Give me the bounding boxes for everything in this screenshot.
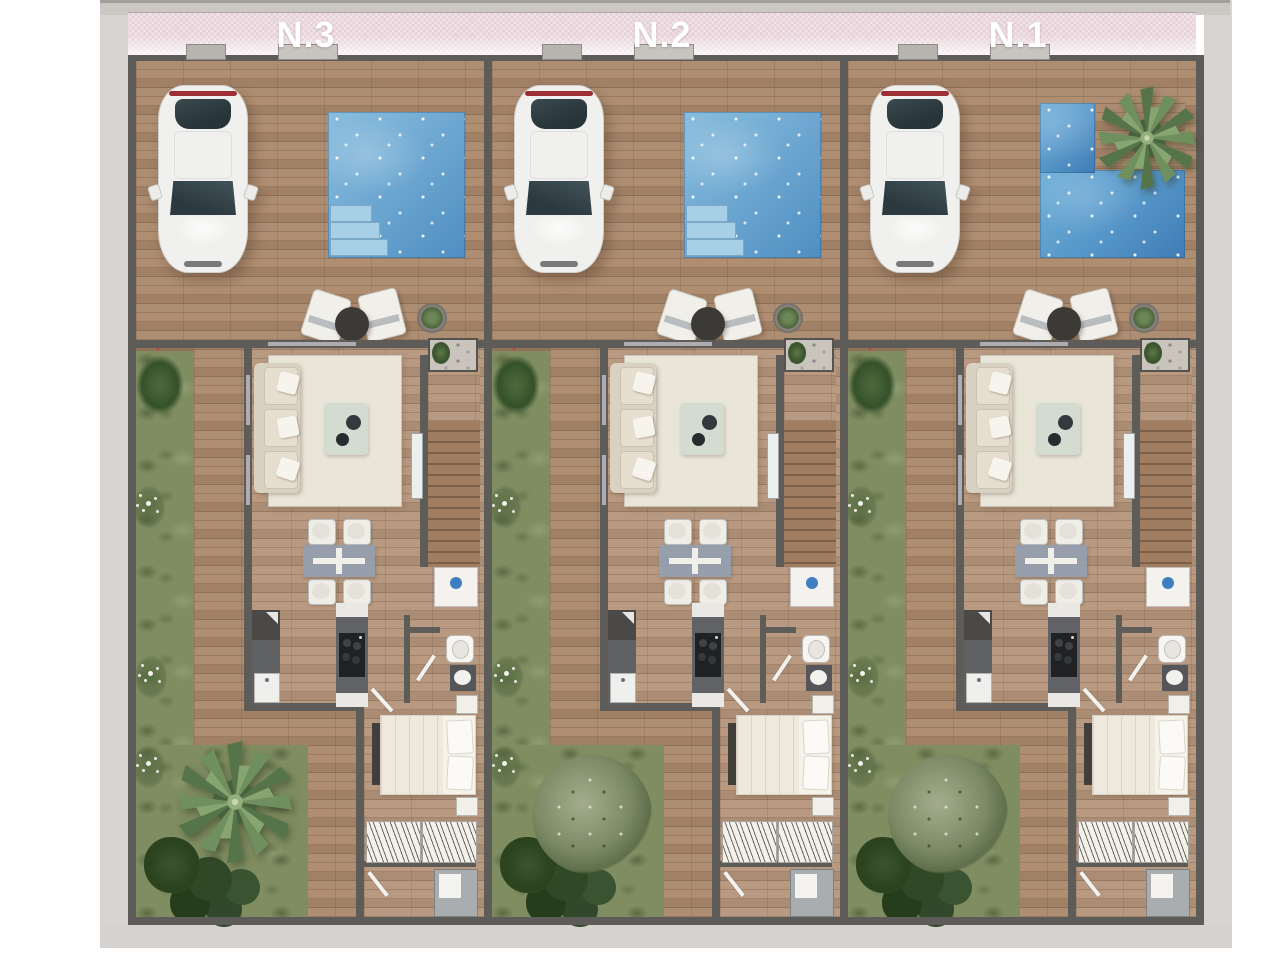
car-rear-window [531,99,587,129]
flower-bush [132,745,166,789]
kitchen-island [692,603,724,707]
dining-chair [308,579,336,605]
car-windshield [170,181,236,215]
sofa-pillow [988,415,1011,438]
duvet [737,716,799,794]
unit-label: N.1 [988,14,1047,56]
garden-walkway [906,348,956,710]
parked-car [514,85,604,273]
side-boundary-wall [484,55,492,925]
side-window [246,375,250,425]
glass-rail [767,433,779,499]
kitchen-sink [966,673,992,703]
car-grille [184,261,222,267]
car-rear-window [175,99,231,129]
glass-rail [1123,433,1135,499]
dining-chair [1055,519,1083,545]
side-table [691,307,725,341]
parked-car [870,85,960,273]
sofa-pillow [276,415,299,438]
car-rear-window [887,99,943,129]
refrigerator [434,567,478,607]
porch-step [542,44,582,60]
shrub [848,355,896,415]
shrub [492,355,540,415]
flower-bush [488,485,522,529]
bedroom-wing-wall [1068,710,1076,917]
shower [1146,869,1190,917]
olive-tree [532,755,652,875]
olive-tree [888,755,1008,875]
double-bed [1092,715,1188,795]
car-windshield [526,181,592,215]
sidewalk-bottom [100,925,1232,948]
cooktop [695,633,721,677]
pool-step [330,222,380,239]
wardrobe-section [722,821,777,863]
side-window [602,455,606,505]
dining-chair [343,579,371,605]
kitchen-island [1048,603,1080,707]
bed-pillow [1158,719,1186,754]
island-worktop [692,693,724,707]
wardrobe [1078,821,1188,861]
sofa-pillow [632,415,655,438]
car-roof [530,131,588,179]
decor-tray [1058,415,1073,430]
garden-walkway [550,348,600,710]
dining-chair [308,519,336,545]
porch-step [898,44,938,60]
pool-step [686,205,728,222]
table-runner [336,548,342,574]
double-bed [736,715,832,795]
flower-bush [490,655,524,699]
dining-chair [343,519,371,545]
washbasin [806,665,832,691]
shower [434,869,478,917]
sofa [610,363,656,493]
dining-chair [699,519,727,545]
island-worktop [692,603,724,617]
car-grille [540,261,578,267]
rear-boundary-wall [484,917,840,925]
decor-tray [346,415,361,430]
duvet [381,716,443,794]
car-taillights [525,91,593,96]
bed-pillow [802,719,830,754]
kitchen-cabinet [608,610,636,640]
car-hood [172,217,234,257]
kitchen-cabinet [252,610,280,640]
wardrobe [366,821,476,861]
decor-tray [692,433,705,446]
kitchen-sink [254,673,280,703]
shower [790,869,834,917]
sofa [254,363,300,493]
rear-boundary-wall [840,917,1196,925]
bedroom-wing-wall [356,710,364,917]
wardrobe-section [1134,821,1189,863]
bed-bench [372,723,380,785]
townhouse-unit [128,55,484,925]
refrigerator [1146,567,1190,607]
townhouse-unit [484,55,840,925]
coffee-table [680,403,724,455]
decor-tray [1048,433,1061,446]
flower-bush [846,655,880,699]
shrub [136,355,184,415]
side-window [602,375,606,425]
coffee-table [1036,403,1080,455]
bed-pillow [446,755,474,790]
table-runner [1048,548,1054,574]
bathroom-wall [1122,627,1152,633]
entry-planter [428,338,478,372]
refrigerator [790,567,834,607]
potted-plant [417,303,447,333]
entry-planter [1140,338,1190,372]
pool-step [330,205,372,222]
pool-step [330,239,388,256]
car-hood [884,217,946,257]
dining-chair [699,579,727,605]
car-hood [528,217,590,257]
bed-pillow [802,755,830,790]
rear-boundary-wall [128,917,484,925]
bed-pillow [446,719,474,754]
entry-planter [784,338,834,372]
dining-chair [1020,519,1048,545]
island-worktop [1048,603,1080,617]
unit-label: N.2 [632,14,691,56]
cooktop [1051,633,1077,677]
dining-chair [664,579,692,605]
palm-tree-icon [1092,83,1202,193]
car-taillights [169,91,237,96]
kitchen-counter [252,610,280,705]
kitchen-island [336,603,368,707]
dining-table [303,545,375,577]
front-window [624,342,712,346]
side-table [335,307,369,341]
kitchen-sink [610,673,636,703]
kitchen-cabinet [964,610,992,640]
pool-step [686,222,736,239]
staircase [1140,421,1192,567]
wardrobe [722,821,832,861]
porch-step [186,44,226,60]
unit-label: N.3 [276,14,335,56]
sidewalk-left [100,0,128,948]
dining-table [1015,545,1087,577]
pool-step [686,239,744,256]
bathroom-wall [410,627,440,633]
townhouse-unit [840,55,1196,925]
pool-palm-tree [1092,83,1202,193]
wardrobe-section [366,821,421,863]
bedroom-wing-wall [712,710,720,917]
sofa [966,363,1012,493]
nightstand [812,695,834,714]
coffee-table [324,403,368,455]
dining-chair [664,519,692,545]
toilet [446,635,474,663]
potted-plant [1129,303,1159,333]
island-worktop [336,603,368,617]
island-worktop [336,693,368,707]
glass-rail [411,433,423,499]
flower-bush [844,745,878,789]
kitchen-counter [964,610,992,705]
front-window [980,342,1068,346]
swimming-pool-upper-arm [1040,103,1095,173]
wardrobe-section [422,821,477,863]
front-window [268,342,356,346]
side-window [958,375,962,425]
wardrobe-section [1078,821,1133,863]
nightstand [1168,797,1190,816]
potted-plant [773,303,803,333]
duvet [1093,716,1155,794]
bed-pillow [1158,755,1186,790]
palm-tree-icon [170,737,300,867]
sidewalk-right [1204,0,1232,948]
washbasin [1162,665,1188,691]
flower-bush [132,485,166,529]
staircase [428,421,480,567]
bathroom-wall [766,627,796,633]
kitchen-counter [608,610,636,705]
car-grille [896,261,934,267]
parked-car [158,85,248,273]
toilet [802,635,830,663]
car-windshield [882,181,948,215]
washbasin [450,665,476,691]
bed-bench [728,723,736,785]
nightstand [456,797,478,816]
dining-chair [1020,579,1048,605]
car-taillights [881,91,949,96]
toilet [1158,635,1186,663]
bed-bench [1084,723,1092,785]
side-table [1047,307,1081,341]
floor-plan-canvas: N.3N.2N.1 [0,0,1280,960]
wardrobe-section [778,821,833,863]
nightstand [456,695,478,714]
side-window [958,455,962,505]
car-roof [886,131,944,179]
side-window [246,455,250,505]
decor-tray [336,433,349,446]
nightstand [1168,695,1190,714]
cooktop [339,633,365,677]
decor-tray [702,415,717,430]
flower-bush [844,485,878,529]
island-worktop [1048,693,1080,707]
table-runner [692,548,698,574]
flower-bush [134,655,168,699]
side-boundary-wall [128,55,136,925]
dining-table [659,545,731,577]
double-bed [380,715,476,795]
palm-tree [170,737,300,867]
nightstand [812,797,834,816]
side-boundary-wall [840,55,848,925]
flower-bush [488,745,522,789]
garden-walkway [194,348,244,710]
staircase [784,421,836,567]
car-roof [174,131,232,179]
dining-chair [1055,579,1083,605]
